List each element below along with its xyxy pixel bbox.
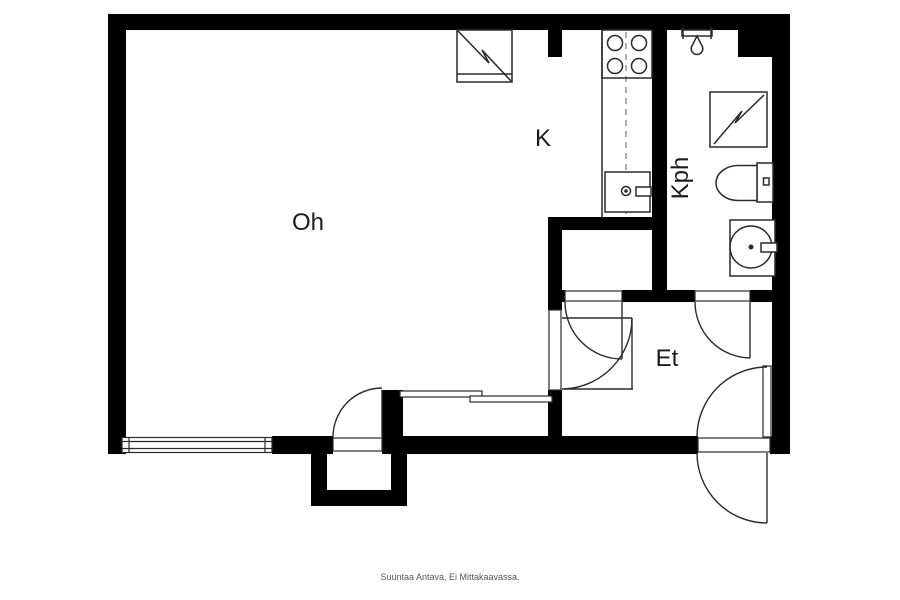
kitchen-sink-icon	[605, 172, 651, 212]
washbasin-icon	[730, 220, 777, 276]
kitchen-fixtures	[457, 30, 652, 217]
door-swing-icon	[697, 453, 767, 523]
bathroom-label: Kph	[667, 157, 694, 200]
bathroom-door-sill	[695, 291, 750, 301]
closet-wall-bottom-left	[548, 290, 565, 302]
door-swing-icon	[697, 366, 771, 437]
hallway-label: Et	[656, 345, 679, 372]
disclaimer-text: Suuntaa Antava, Ei Mittakaavassa.	[380, 572, 519, 582]
living-hall-wall-top	[548, 302, 562, 310]
bathroom-fixtures	[682, 27, 777, 276]
living-hall-door-jamb	[549, 310, 561, 390]
stove-icon	[602, 30, 652, 78]
door-swing-icon	[333, 388, 382, 437]
window-icon	[122, 438, 272, 453]
closet-wall-top	[548, 217, 652, 230]
closet-door-sill	[565, 291, 622, 301]
shower-icon	[682, 27, 712, 54]
toilet-icon	[716, 163, 773, 202]
wall-bottom-a	[108, 436, 122, 454]
room-labels: Oh K Kph Et	[292, 125, 694, 372]
floor-plan-page: Oh K Kph Et Suuntaa Antava, Ei Mittakaav…	[0, 0, 900, 600]
wall-bottom-c	[382, 436, 698, 454]
wall-bottom-b	[272, 436, 333, 454]
sliding-door-icon	[400, 391, 552, 402]
wall-bottom-d	[770, 436, 790, 454]
closet-wall-bottom-right	[622, 290, 652, 302]
wall-top	[108, 14, 790, 30]
alcove-wall-right	[391, 454, 407, 506]
wall-left	[108, 14, 126, 454]
alcove-door-sill	[333, 438, 382, 451]
kitchen-wall-stub	[548, 30, 562, 57]
exterior-walls	[108, 14, 790, 454]
floor-plan-svg: Oh K Kph Et Suuntaa Antava, Ei Mittakaav…	[0, 0, 900, 600]
living-room-label: Oh	[292, 209, 324, 236]
window-frame	[122, 438, 272, 453]
bathroom-hall-wall-right	[750, 290, 772, 302]
bathroom-hall-wall-left	[667, 290, 695, 302]
kitchen-label: K	[535, 125, 551, 152]
door-swing-icon	[565, 302, 622, 359]
kitchen-bathroom-wall	[652, 30, 667, 302]
entry-door-sill	[698, 438, 770, 452]
fridge-appliance-icon	[457, 30, 512, 82]
washing-machine-icon	[710, 92, 767, 147]
door-swing-icon	[695, 302, 750, 358]
